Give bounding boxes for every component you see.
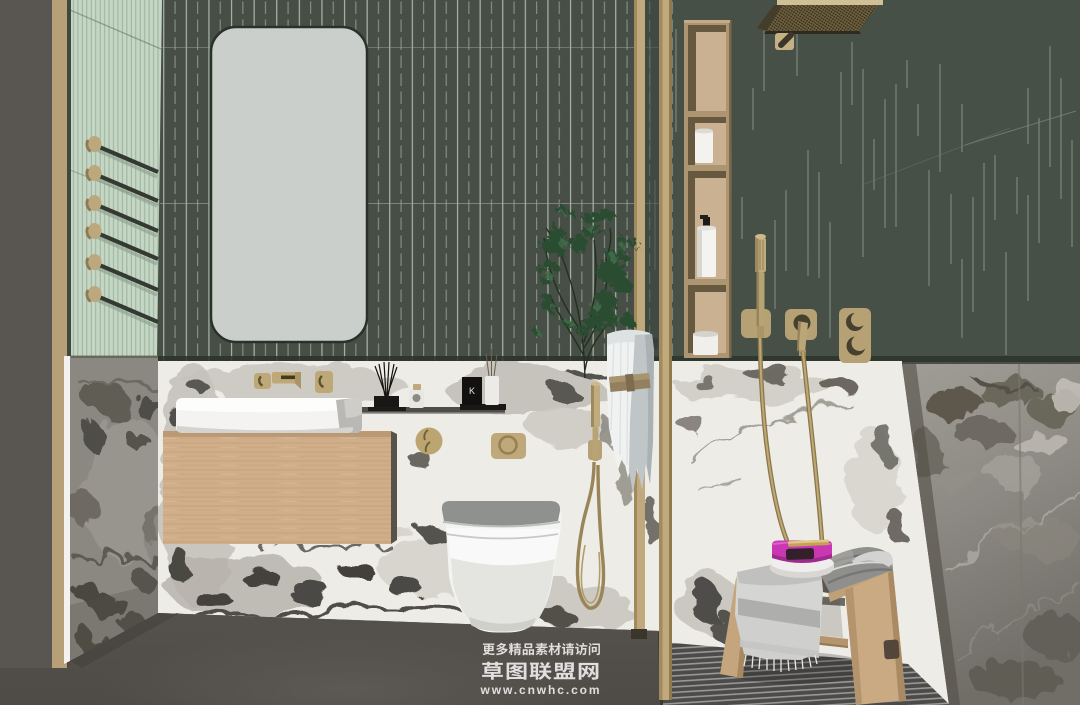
svg-text:K: K (469, 386, 475, 396)
svg-text:www.cnwhc.com: www.cnwhc.com (480, 683, 602, 697)
